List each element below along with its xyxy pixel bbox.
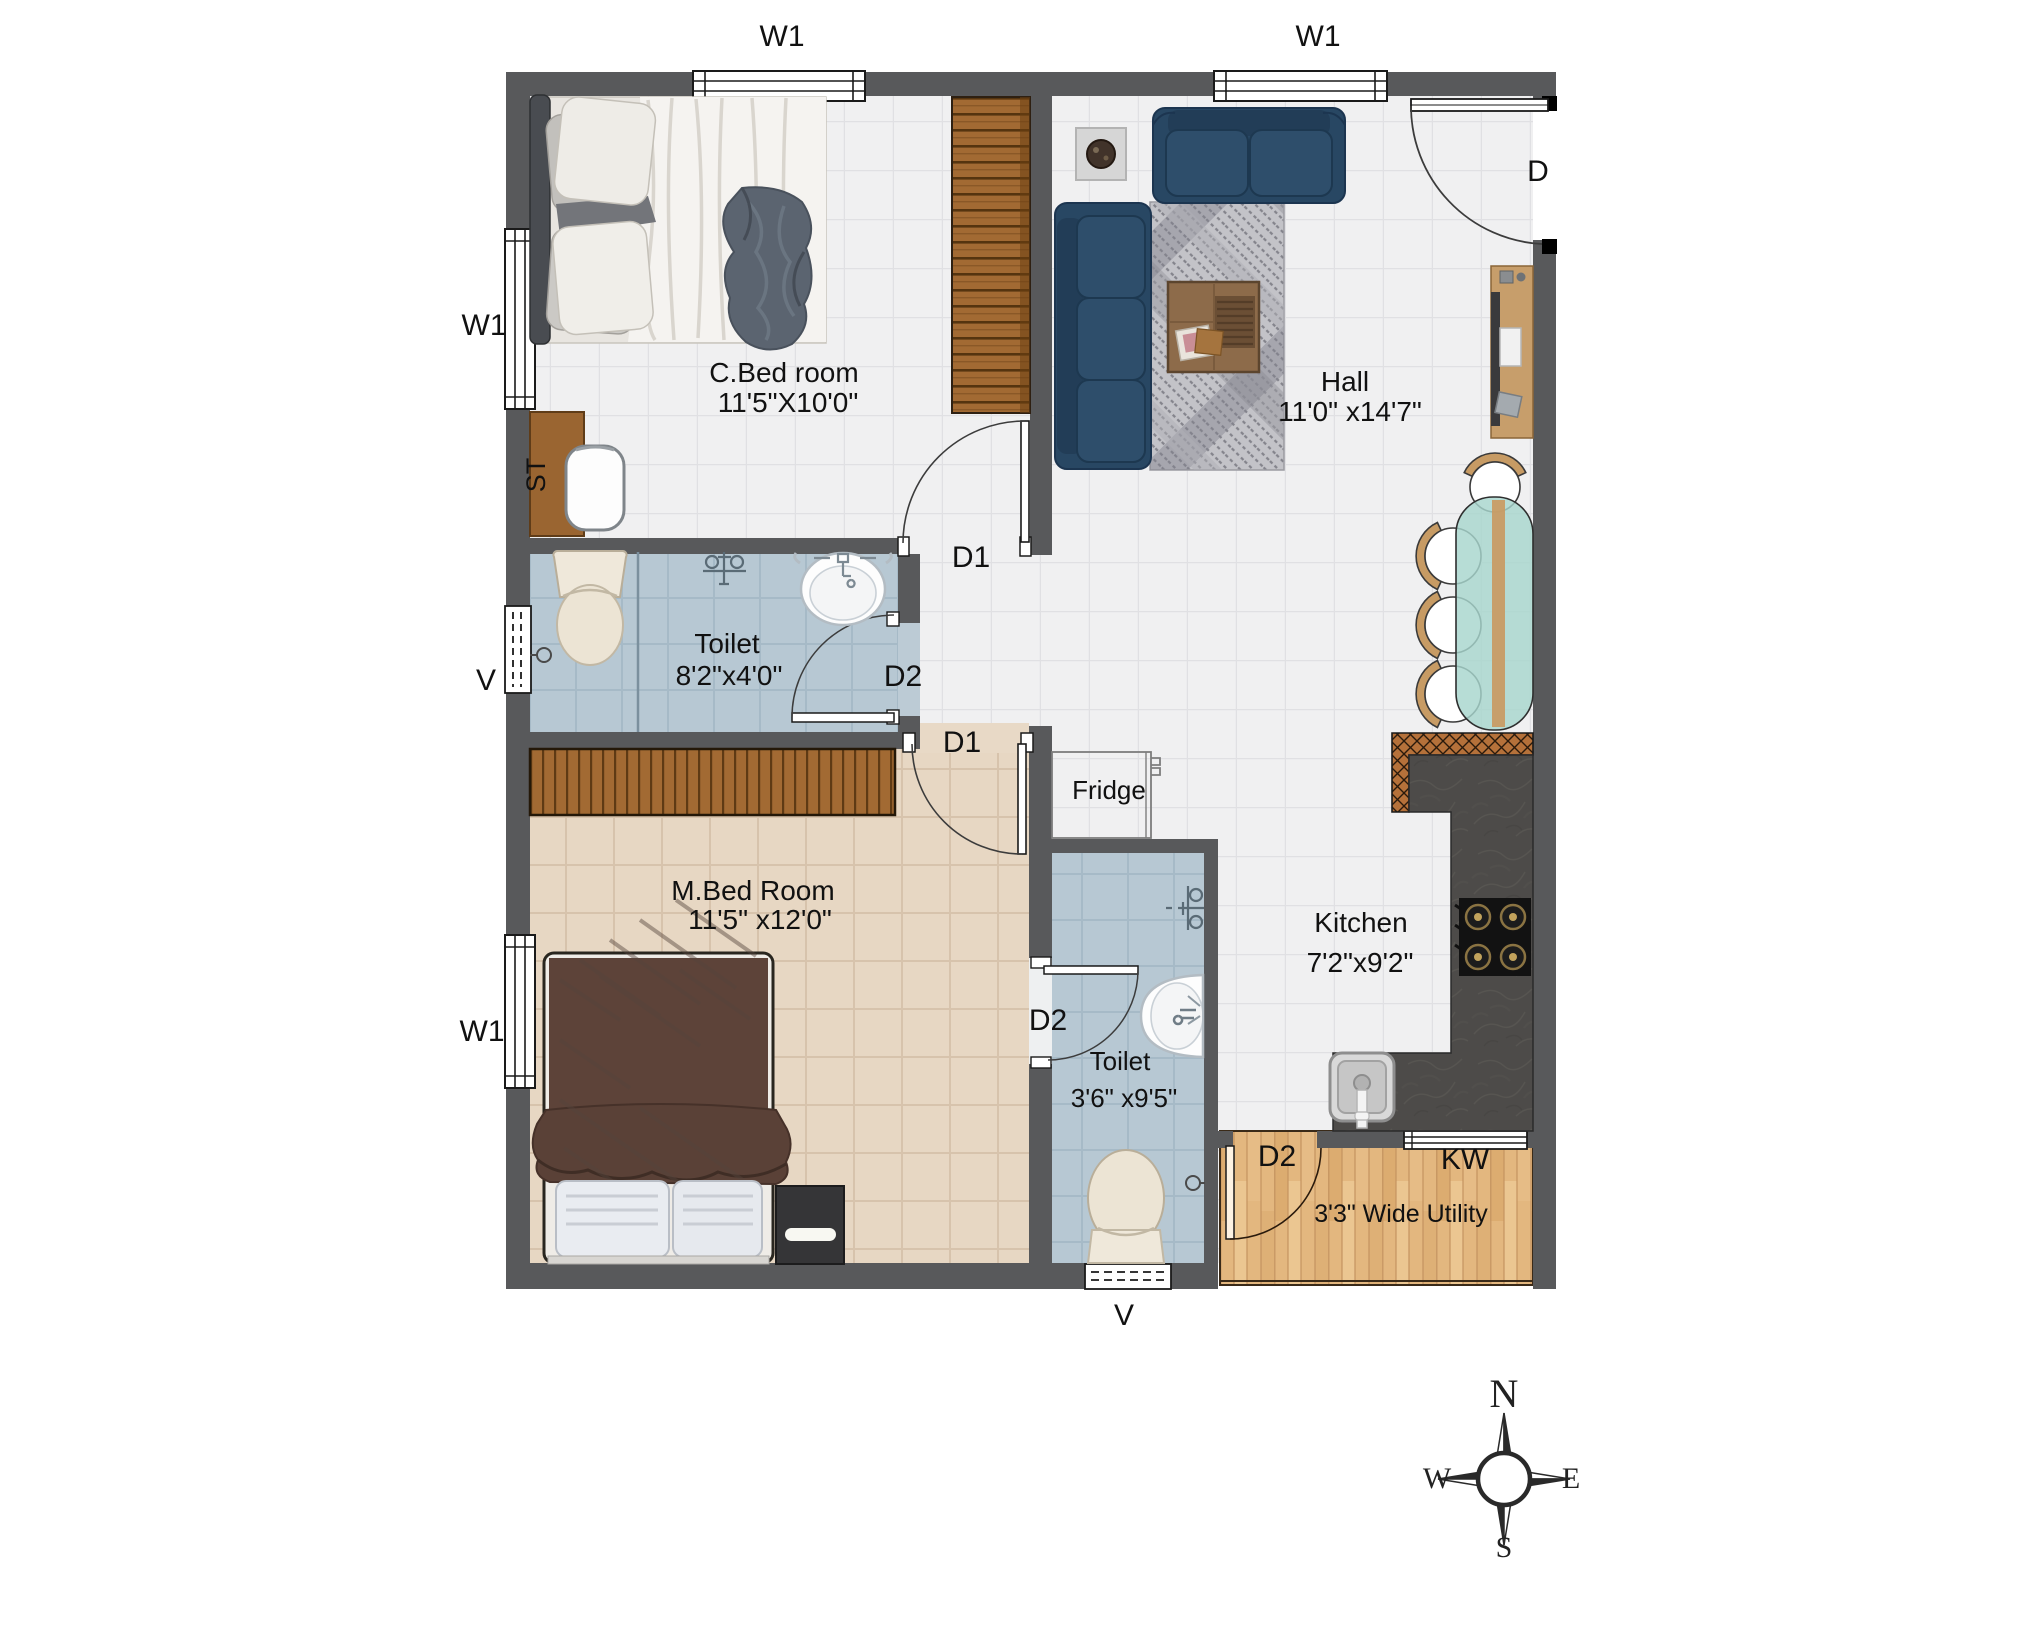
svg-text:3'6" x9'5": 3'6" x9'5" (1071, 1083, 1177, 1113)
svg-text:S: S (1496, 1531, 1513, 1564)
svg-text:11'0" x14'7": 11'0" x14'7" (1278, 396, 1422, 427)
svg-text:E: E (1562, 1462, 1580, 1495)
svg-text:D2: D2 (1029, 1004, 1067, 1037)
svg-text:D2: D2 (884, 660, 922, 693)
svg-text:Fridge: Fridge (1072, 775, 1146, 805)
svg-text:D: D (1527, 155, 1549, 188)
svg-text:KW: KW (1441, 1143, 1490, 1176)
svg-text:D1: D1 (943, 726, 981, 759)
svg-text:3'3" Wide Utility: 3'3" Wide Utility (1314, 1200, 1488, 1228)
svg-text:11'5"X10'0": 11'5"X10'0" (718, 387, 859, 418)
svg-text:D2: D2 (1258, 1140, 1296, 1173)
svg-text:8'2"x4'0": 8'2"x4'0" (676, 660, 783, 691)
svg-text:ST: ST (521, 458, 551, 493)
svg-text:7'2"x9'2": 7'2"x9'2" (1307, 947, 1414, 978)
svg-text:W1: W1 (760, 20, 805, 53)
svg-text:Toilet: Toilet (1090, 1046, 1151, 1076)
svg-text:W1: W1 (462, 309, 507, 342)
svg-text:Hall: Hall (1321, 366, 1369, 397)
svg-text:V: V (1114, 1299, 1134, 1332)
svg-text:W1: W1 (460, 1015, 505, 1048)
svg-text:V: V (476, 664, 496, 697)
svg-text:N: N (1490, 1371, 1519, 1416)
svg-text:M.Bed Room: M.Bed Room (671, 875, 834, 906)
svg-text:D1: D1 (952, 541, 990, 574)
svg-text:W1: W1 (1296, 20, 1341, 53)
svg-text:C.Bed room: C.Bed room (709, 357, 858, 388)
svg-text:W: W (1423, 1462, 1452, 1495)
svg-text:Toilet: Toilet (694, 628, 760, 659)
svg-text:11'5" x12'0": 11'5" x12'0" (688, 904, 832, 935)
svg-text:Kitchen: Kitchen (1314, 907, 1407, 938)
